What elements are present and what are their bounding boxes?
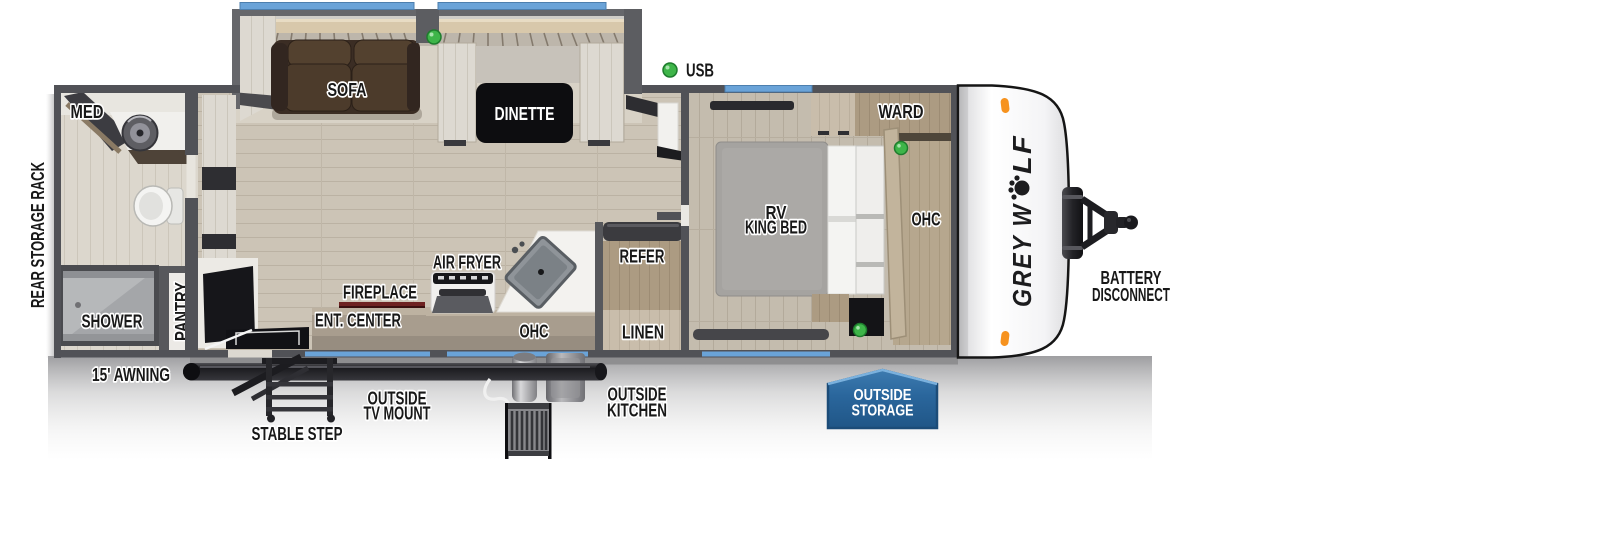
svg-text:GREY W: GREY W bbox=[1007, 203, 1037, 307]
svg-text:USB: USB bbox=[686, 61, 714, 81]
svg-text:ENT. CENTER: ENT. CENTER bbox=[315, 311, 401, 331]
svg-text:KITCHEN: KITCHEN bbox=[607, 401, 667, 421]
svg-text:OHC: OHC bbox=[912, 210, 941, 230]
svg-text:REFER: REFER bbox=[620, 247, 665, 267]
svg-text:STABLE STEP: STABLE STEP bbox=[252, 424, 343, 444]
svg-text:15' AWNING: 15' AWNING bbox=[92, 365, 170, 385]
svg-text:DINETTE: DINETTE bbox=[495, 104, 555, 124]
svg-text:LINEN: LINEN bbox=[622, 323, 664, 343]
svg-text:TV MOUNT: TV MOUNT bbox=[364, 404, 431, 424]
svg-text:WARD: WARD bbox=[879, 102, 924, 122]
svg-text:DISCONNECT: DISCONNECT bbox=[1092, 285, 1170, 305]
svg-text:AIR FRYER: AIR FRYER bbox=[433, 253, 501, 273]
svg-text:STORAGE: STORAGE bbox=[852, 403, 914, 420]
svg-text:FIREPLACE: FIREPLACE bbox=[343, 283, 417, 303]
svg-text:OUTSIDE: OUTSIDE bbox=[854, 387, 912, 404]
svg-text:SOFA: SOFA bbox=[328, 80, 367, 100]
svg-text:REAR STORAGE RACK: REAR STORAGE RACK bbox=[28, 162, 48, 308]
svg-text:SHOWER: SHOWER bbox=[82, 312, 143, 332]
svg-text:LF: LF bbox=[1007, 134, 1037, 174]
svg-text:OHC: OHC bbox=[520, 322, 549, 342]
svg-text:MED: MED bbox=[71, 102, 104, 122]
svg-text:KING BED: KING BED bbox=[745, 218, 807, 238]
